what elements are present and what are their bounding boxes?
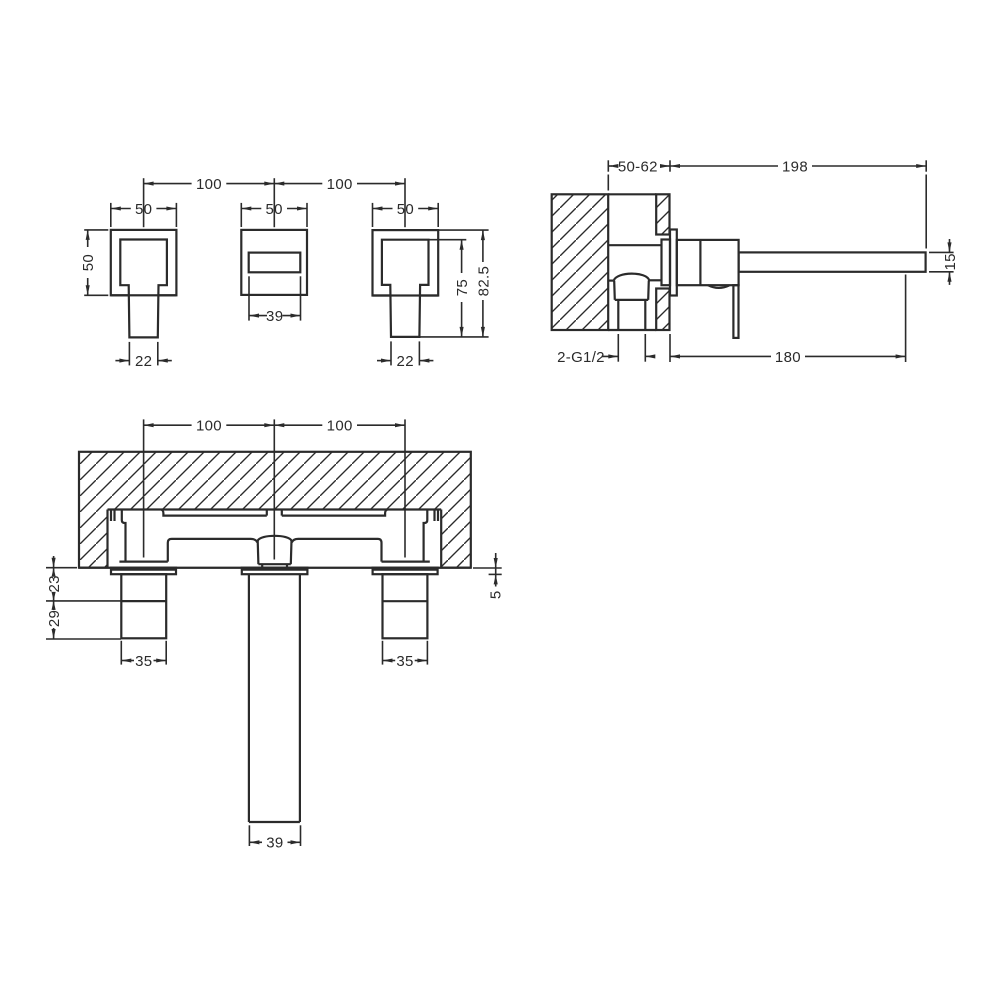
svg-text:22: 22: [397, 353, 414, 370]
svg-text:100: 100: [327, 418, 353, 435]
svg-text:35: 35: [396, 653, 413, 670]
svg-text:23: 23: [46, 575, 63, 592]
svg-text:198: 198: [782, 158, 808, 175]
svg-text:180: 180: [775, 349, 801, 366]
svg-text:50: 50: [266, 201, 283, 218]
svg-text:50: 50: [135, 201, 152, 218]
svg-text:35: 35: [135, 653, 152, 670]
svg-text:50: 50: [397, 201, 414, 218]
svg-text:100: 100: [196, 418, 222, 435]
svg-text:22: 22: [135, 353, 152, 370]
svg-text:50-62: 50-62: [618, 158, 658, 175]
svg-text:29: 29: [46, 610, 63, 627]
svg-text:39: 39: [266, 308, 283, 325]
svg-text:5: 5: [487, 590, 504, 599]
svg-text:75: 75: [454, 279, 471, 296]
svg-text:100: 100: [327, 176, 353, 193]
svg-text:50: 50: [80, 254, 97, 271]
svg-text:2-G1/2: 2-G1/2: [557, 349, 605, 366]
svg-text:15: 15: [942, 253, 959, 270]
svg-text:82.5: 82.5: [475, 266, 492, 296]
svg-text:39: 39: [266, 835, 283, 852]
svg-text:100: 100: [196, 176, 222, 193]
